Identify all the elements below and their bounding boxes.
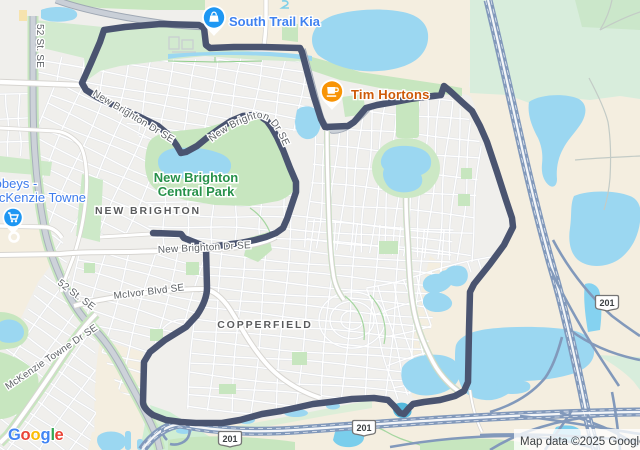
svg-text:201: 201 [599, 298, 614, 308]
svg-text:Map data ©2025 Google: Map data ©2025 Google [520, 436, 640, 448]
svg-text:G: G [8, 426, 21, 444]
svg-text:e: e [55, 426, 64, 444]
svg-text:201: 201 [222, 434, 237, 444]
svg-text:New Brighton: New Brighton [154, 170, 239, 185]
svg-text:o: o [31, 426, 41, 444]
svg-text:Tim Hortons: Tim Hortons [351, 87, 430, 102]
svg-text:COPPERFIELD: COPPERFIELD [217, 319, 313, 331]
svg-text:NEW BRIGHTON: NEW BRIGHTON [95, 205, 201, 217]
svg-text:South Trail Kia: South Trail Kia [229, 14, 321, 29]
svg-text:201: 201 [356, 423, 371, 433]
svg-text:g: g [41, 426, 51, 444]
svg-text:o: o [21, 426, 31, 444]
svg-text:Central Park: Central Park [158, 184, 235, 199]
svg-text:McKenzie Towne: McKenzie Towne [0, 190, 86, 205]
svg-text:Sobeys -: Sobeys - [0, 176, 37, 191]
svg-text:52 St. SE: 52 St. SE [34, 24, 45, 68]
